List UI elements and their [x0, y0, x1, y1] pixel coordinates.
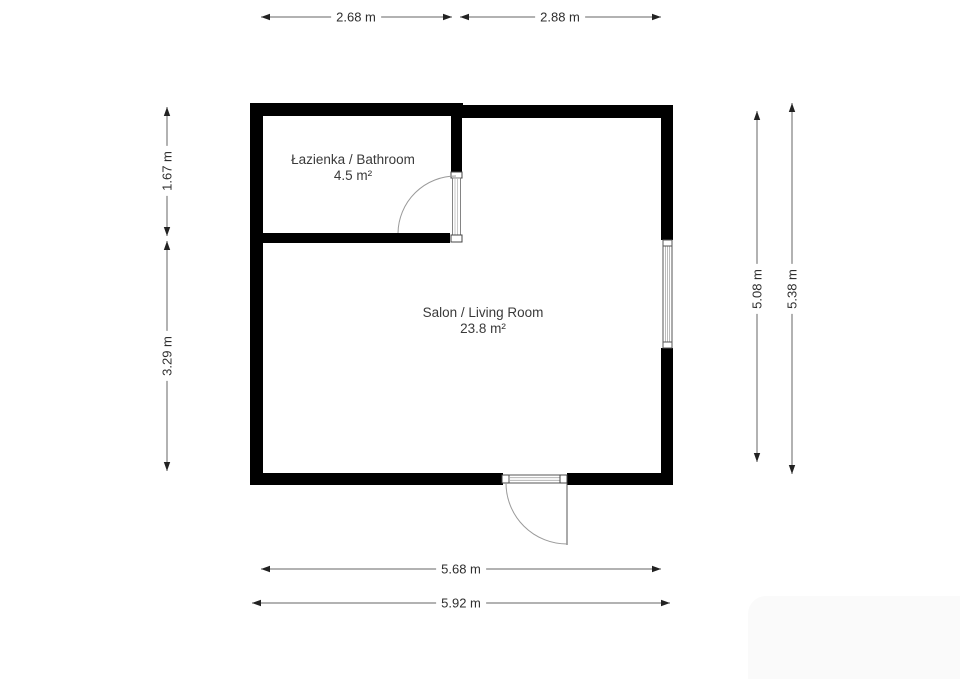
arrow-left-icon — [261, 14, 270, 20]
arrow-down-icon — [164, 227, 170, 236]
dimension-label-bottom-2: 5.92 m — [436, 596, 486, 611]
watermark-blob — [748, 596, 960, 679]
dimension-label-right-2: 5.38 m — [785, 264, 800, 314]
dimension-label-top-2: 2.88 m — [535, 10, 585, 25]
wall-right-lower — [661, 348, 673, 485]
arrow-up-icon — [789, 103, 795, 112]
living-room-area: 23.8 m² — [423, 321, 544, 337]
arrow-down-icon — [164, 462, 170, 471]
floor-plan-canvas: 2.68 m 2.88 m 1.67 m 3.29 m 5.08 m 5.38 … — [0, 0, 960, 679]
arrow-up-icon — [164, 107, 170, 116]
entrance-door-jamb-right — [560, 475, 567, 483]
wall-left — [250, 103, 263, 485]
wall-top-living — [457, 105, 673, 118]
bathroom-label: Łazienka / Bathroom 4.5 m² — [291, 152, 415, 184]
arrow-down-icon — [754, 453, 760, 462]
wall-bottom-left — [250, 473, 503, 485]
entrance-door-arc — [506, 483, 567, 544]
window-jamb-top — [663, 240, 672, 246]
window-jamb-bottom — [663, 342, 672, 348]
wall-bathroom-bottom — [263, 233, 450, 243]
entrance-door — [502, 475, 567, 545]
arrow-down-icon — [789, 465, 795, 474]
dimension-label-top-1: 2.68 m — [331, 10, 381, 25]
arrow-up-icon — [754, 111, 760, 120]
arrow-right-icon — [443, 14, 452, 20]
dimension-label-right-1: 5.08 m — [750, 264, 765, 314]
dimension-label-left-2: 3.29 m — [160, 331, 175, 381]
wall-bottom-right — [567, 473, 673, 485]
entrance-door-threshold — [509, 475, 560, 483]
arrow-left-icon — [460, 14, 469, 20]
arrow-left-icon — [261, 566, 270, 572]
entrance-door-jamb-left — [502, 475, 509, 483]
floor-plan-drawing — [0, 0, 960, 679]
arrow-left-icon — [252, 600, 261, 606]
arrow-right-icon — [652, 14, 661, 20]
dimension-label-left-1: 1.67 m — [160, 146, 175, 196]
bathroom-door-jamb-bottom — [451, 235, 462, 242]
arrow-right-icon — [661, 600, 670, 606]
bathroom-door-frame — [453, 178, 461, 235]
dimension-label-bottom-1: 5.68 m — [436, 562, 486, 577]
bathroom-door-arc — [398, 176, 456, 233]
bathroom-door-jamb-top — [451, 172, 462, 178]
wall-right-upper — [661, 105, 673, 240]
bathroom-name: Łazienka / Bathroom — [291, 152, 415, 168]
living-room-name: Salon / Living Room — [423, 305, 544, 321]
window-right — [663, 240, 672, 348]
wall-bathroom-right — [451, 116, 462, 173]
arrow-up-icon — [164, 241, 170, 250]
arrow-right-icon — [652, 566, 661, 572]
bathroom-area: 4.5 m² — [291, 168, 415, 184]
wall-top-bathroom — [250, 103, 463, 116]
living-room-label: Salon / Living Room 23.8 m² — [423, 305, 544, 337]
